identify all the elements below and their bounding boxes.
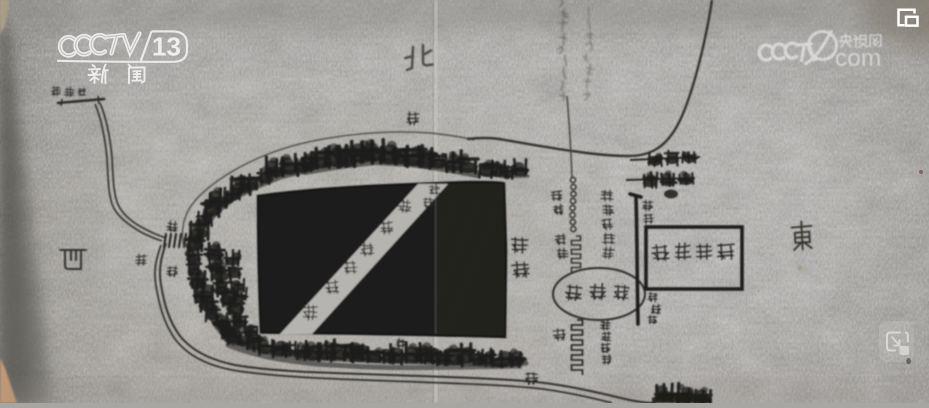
svg-text:13: 13 [152,32,181,62]
svg-text:com: com [835,45,881,72]
